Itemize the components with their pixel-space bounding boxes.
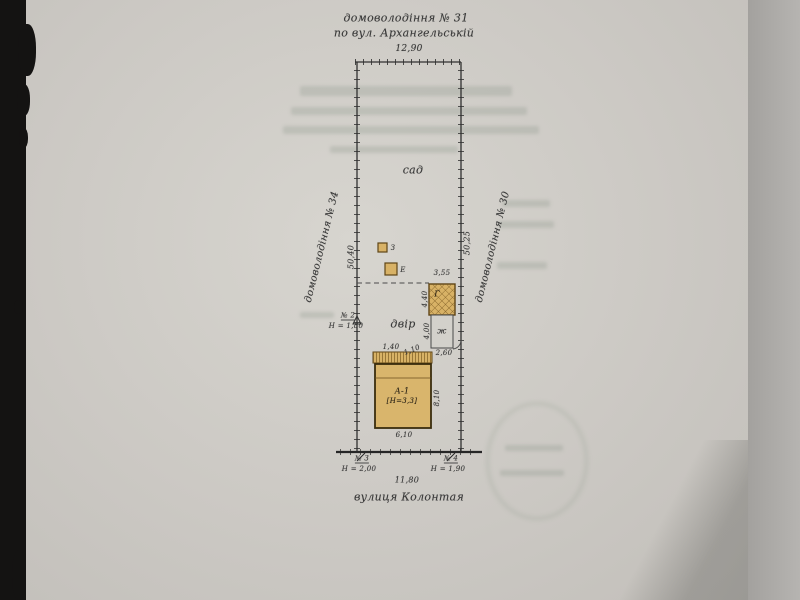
dim-frontage-top: 12,90 (395, 44, 422, 54)
marker-4-number: № 4 (444, 455, 458, 464)
marker-3-number: № 3 (355, 455, 369, 464)
dim-street-frontage: 11,80 (395, 476, 419, 485)
garden-area-label: сад (403, 164, 424, 177)
dim-house-width: 6,10 (396, 431, 413, 439)
top-estate-label: домоволодіння № 31 (343, 12, 468, 25)
house-footprint (375, 364, 431, 428)
dim-house-depth: 8,10 (433, 390, 441, 407)
shed-z-label: З (391, 244, 396, 252)
structure-zh-label: ж (437, 327, 446, 336)
shed-e-footprint (385, 263, 397, 275)
dim-zh-width: 2,60 (436, 349, 453, 357)
street-name-label: вулиця Колонтая (354, 491, 464, 504)
dim-garage-depth: 4,40 (421, 291, 429, 308)
garage-label: Г (434, 290, 440, 299)
marker-2-height: Н = 1,80 (329, 322, 363, 330)
dim-left-length: 50,40 (347, 245, 356, 269)
marker-2-number: № 2 (341, 312, 355, 321)
plan-drawing (0, 0, 800, 600)
shed-z-footprint (378, 243, 387, 252)
gate-swing-arc (453, 340, 461, 349)
shed-e-label: Е (400, 266, 405, 274)
dim-garage-width: 3,55 (434, 269, 451, 277)
dim-zh-depth: 4,00 (423, 323, 431, 340)
dim-right-length: 50,25 (463, 231, 472, 255)
marker-3-height: Н = 2,00 (342, 465, 376, 473)
dim-porch-1: 1,40 (383, 343, 400, 351)
garage-footprint (429, 284, 455, 315)
yard-area-label: двір (390, 318, 415, 331)
top-street-ref-label: по вул. Архангельській (334, 27, 474, 40)
porch-footprint (373, 352, 432, 363)
house-label: А-1 (395, 387, 410, 396)
house-height-note: [Н=3,3] (387, 397, 418, 405)
scanned-site-plan-page: домоволодіння № 31 по вул. Архангельські… (0, 0, 800, 600)
marker-4-height: Н = 1,90 (431, 465, 465, 473)
